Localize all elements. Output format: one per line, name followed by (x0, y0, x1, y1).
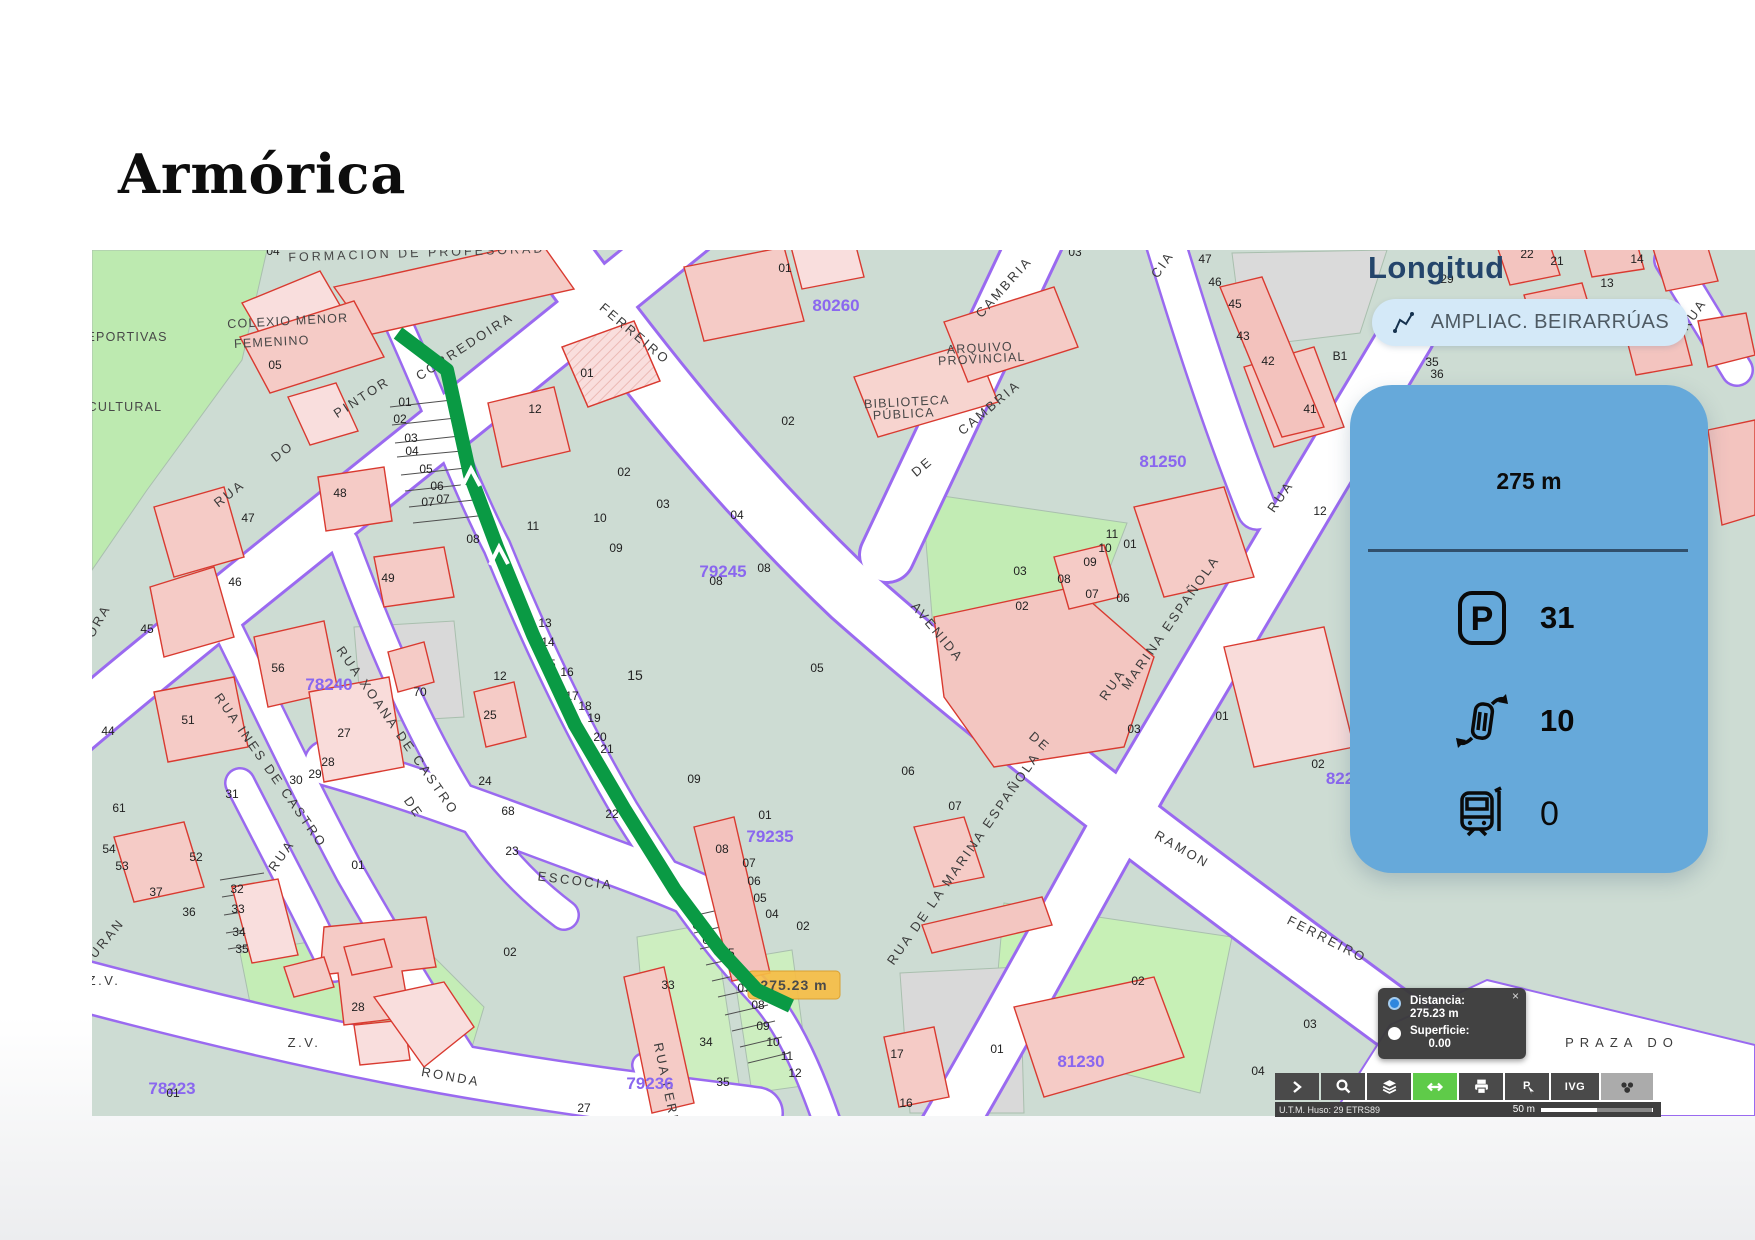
map-num-label: 04 (405, 444, 419, 458)
map-num-label: 12 (493, 669, 507, 683)
map-num-label: 02 (1131, 974, 1145, 988)
map-num-label: 02 (1311, 757, 1325, 771)
map-street-label: Z.V. (288, 1035, 321, 1050)
layers-icon (1381, 1078, 1398, 1095)
parking-icon: P (1454, 587, 1510, 649)
map-num-label: 02 (1015, 599, 1029, 613)
map-num-label: 29 (308, 767, 322, 781)
map-num-label: 08 (1057, 572, 1071, 586)
printer-icon (1473, 1078, 1490, 1095)
parking-count: 31 (1540, 600, 1574, 636)
map-num-label: B1 (1333, 349, 1348, 363)
tram-count: 0 (1540, 795, 1559, 834)
distance-value: 275.23 m (1410, 1008, 1465, 1020)
svg-text:P: P (1471, 600, 1494, 638)
map-num-label: 06 (747, 874, 761, 888)
map-num-label: 04 (765, 907, 779, 921)
map-num-label: 32 (230, 882, 244, 896)
map-num-label: 48 (333, 486, 347, 500)
map-num-label: 37 (149, 885, 163, 899)
map-num-label: 02 (393, 412, 407, 426)
map-num-label: 05 (268, 358, 282, 372)
scale-bar: 50 m (1513, 1104, 1653, 1115)
map-num-label: 03 (1068, 250, 1082, 259)
map-num-label: 01 (1123, 537, 1137, 551)
map-num-label: 10 (766, 1035, 780, 1049)
map-num-label: 11 (1106, 527, 1119, 541)
expand-button[interactable] (1275, 1073, 1319, 1100)
projection-status: U.T.M. Huso: 29 ETRS89 (1279, 1105, 1380, 1115)
map-num-label: 14 (1630, 252, 1644, 266)
map-num-label: 30 (289, 773, 303, 787)
map-num-label: 09 (609, 541, 623, 555)
map-num-label: 53 (115, 859, 129, 873)
map-ref-label: 79235 (746, 827, 793, 846)
stats-card: 275 m P 31 10 (1350, 385, 1708, 873)
divider (1368, 549, 1688, 552)
map-num-label: 42 (1261, 354, 1275, 368)
map-num-label: 22 (1520, 250, 1534, 261)
map-num-label: 13 (538, 616, 552, 630)
length-value: 275 m (1350, 468, 1708, 495)
map-num-label: 31 (225, 787, 239, 801)
map-num-label: 45 (140, 622, 154, 636)
map-num-label: 06 (1116, 591, 1130, 605)
map-num-label: 47 (1198, 252, 1212, 266)
map-num-label: 19 (587, 711, 601, 725)
map-num-label: 02 (617, 465, 631, 479)
map-zone-label: CULTURAL (92, 400, 162, 414)
waste-container-icon (1454, 690, 1510, 752)
map-num-label: 08 (709, 574, 723, 588)
map-num-label: 08 (466, 532, 480, 546)
map-num-label: 12 (788, 1066, 802, 1080)
map-num-label: 46 (1208, 275, 1222, 289)
map-num-label: 05 (419, 462, 433, 476)
area-radio[interactable] (1388, 1027, 1401, 1040)
slide: { "title": "Armórica", "panel": { "headi… (0, 0, 1755, 1240)
map-street-label: Z.V. (92, 973, 120, 988)
map-num-label: 03 (1127, 722, 1141, 736)
map-num-label: 56 (271, 661, 285, 675)
map-num-label: 02 (503, 945, 517, 959)
map-num-label: 47 (241, 511, 255, 525)
map-num-label: 09 (1083, 555, 1097, 569)
map-num-label: 27 (577, 1101, 591, 1115)
map-ref-label: 79245 (699, 562, 746, 581)
map-num-label: 36 (1430, 367, 1444, 381)
area-value: 0.00 (1410, 1038, 1469, 1050)
distance-option[interactable]: Distancia: 275.23 m (1388, 995, 1518, 1020)
map-num-label: 52 (189, 850, 203, 864)
map-num-label: 43 (1236, 329, 1250, 343)
map-num-label: 08 (715, 842, 729, 856)
map-num-label: 05 (753, 891, 767, 905)
map-num-label: 07 (948, 799, 962, 813)
map-num-label: 25 (483, 708, 497, 722)
street-chip[interactable]: AMPLIAC. BEIRARRÚAS (1372, 299, 1688, 346)
map-num-label: 03 (656, 497, 670, 511)
scale-label: 50 m (1513, 1104, 1535, 1115)
map-num-label: 02 (781, 414, 795, 428)
scale-bar-line (1541, 1108, 1653, 1112)
map-num-label: 07 (1085, 587, 1099, 601)
map-num-label: 21 (1550, 254, 1564, 268)
measure-button[interactable] (1413, 1073, 1457, 1100)
map-num-label: 21 (600, 742, 614, 756)
measure-arrow-icon (1426, 1079, 1444, 1095)
map-num-label: 27 (337, 726, 351, 740)
map-num-label: 49 (381, 571, 395, 585)
map-num-label: 01 (580, 366, 594, 380)
street-view-button[interactable] (1601, 1073, 1653, 1100)
search-icon (1335, 1078, 1352, 1095)
map-num-label: 35 (716, 1075, 730, 1089)
map-num-label: 01 (398, 395, 412, 409)
map-num-label: 05 (810, 661, 824, 675)
parcel-cursor-icon: P (1518, 1078, 1536, 1095)
map-num-label: 33 (661, 978, 675, 992)
map-num-label: 04 (266, 250, 280, 258)
map-num-label: 24 (478, 774, 492, 788)
page-title: Armórica (118, 142, 406, 206)
map-num-label: 03 (404, 431, 418, 445)
map-num-label: 07 (436, 492, 450, 506)
map-ref-label: 81250 (1139, 452, 1186, 471)
map-num-label: 16 (899, 1096, 913, 1110)
map-num-label: 16 (560, 665, 574, 679)
map-street-label: PRAZA DO (1565, 1035, 1679, 1050)
map-num-label: 28 (321, 755, 335, 769)
map-num-label: 03 (1013, 564, 1027, 578)
map-num-label: 07 (742, 856, 756, 870)
map-ref-label: 79236 (626, 1074, 673, 1093)
map-num-label: 28 (351, 1000, 365, 1014)
map-num-label: 33 (231, 902, 245, 916)
map-num-label: 51 (181, 713, 195, 727)
map-num-label: 08 (757, 561, 771, 575)
map-num-label: 35 (235, 942, 249, 956)
map-num-label: 02 (796, 919, 810, 933)
map-num-label: 34 (232, 925, 246, 939)
map-num-label: 36 (182, 905, 196, 919)
map-num-label: 68 (501, 804, 515, 818)
street-view-icon (1618, 1079, 1636, 1095)
stat-row-parking: P 31 (1350, 587, 1708, 649)
map-num-label: 03 (1303, 1017, 1317, 1031)
map-num-label: 06 (430, 479, 444, 493)
stat-row-tram: 0 (1350, 783, 1708, 845)
map-zone-label: DEPORTIVAS (92, 330, 168, 344)
panel-heading: Longitud (1368, 250, 1505, 286)
close-icon[interactable]: × (1512, 990, 1519, 1002)
print-button[interactable] (1459, 1073, 1503, 1100)
map-statusbar: U.T.M. Huso: 29 ETRS89 50 m (1275, 1102, 1661, 1117)
map-num-label: 45 (1228, 297, 1242, 311)
map-num-label: 11 (527, 519, 540, 533)
map-num-label: 41 (1303, 402, 1317, 416)
map-num-label: 61 (112, 801, 126, 815)
distance-label: Distancia: (1410, 995, 1465, 1007)
map-num-label: 09 (756, 1019, 770, 1033)
chevron-right-icon (1289, 1079, 1305, 1095)
map-num-label: 01 (758, 808, 772, 822)
map-num-label: 07 (421, 495, 435, 509)
map-num-label: 10 (593, 511, 607, 525)
map-num-label: 11 (781, 1049, 794, 1063)
map-num-label: 70 (413, 685, 427, 699)
map-num-label: 04 (1251, 1064, 1265, 1078)
map-num-label: 01 (351, 858, 365, 872)
map-ref-label: 78240 (305, 675, 352, 694)
street-chip-label: AMPLIAC. BEIRARRÚAS (1431, 311, 1669, 334)
map-num-label: 23 (505, 844, 519, 858)
map-num-label: 01 (778, 261, 792, 275)
containers-count: 10 (1540, 703, 1574, 739)
measure-tooltip: × Distancia: 275.23 m Superficie: 0.00 (1378, 988, 1526, 1059)
map-num-label: 12 (1313, 504, 1327, 518)
map-num-label: 01 (1215, 709, 1229, 723)
map-num-label: 06 (901, 764, 915, 778)
map-num-label: 10 (1098, 541, 1112, 555)
search-button[interactable] (1321, 1073, 1365, 1100)
map-toolbar: P IVG (1275, 1073, 1653, 1100)
map-num-label: 15 (627, 667, 643, 683)
map-num-label: 04 (730, 508, 744, 522)
distance-radio[interactable] (1388, 997, 1401, 1010)
map-num-label: 54 (102, 842, 116, 856)
map-num-label: 44 (101, 724, 115, 738)
map-num-label: 17 (890, 1047, 904, 1061)
ivg-button[interactable]: IVG (1551, 1073, 1599, 1100)
svg-text:P: P (1523, 1080, 1530, 1092)
area-option[interactable]: Superficie: 0.00 (1388, 1025, 1518, 1050)
layers-button[interactable] (1367, 1073, 1411, 1100)
map-num-label: 01 (990, 1042, 1004, 1056)
route-icon (1391, 310, 1417, 336)
map-ref-label: 81230 (1057, 1052, 1104, 1071)
map-num-label: 01 (166, 1086, 180, 1100)
map-num-label: 34 (699, 1035, 713, 1049)
ivg-label: IVG (1565, 1081, 1585, 1093)
map-num-label: 46 (228, 575, 242, 589)
stat-row-containers: 10 (1350, 690, 1708, 752)
map-num-label: 12 (528, 402, 542, 416)
area-label: Superficie: (1410, 1025, 1469, 1037)
map-num-label: 13 (1600, 276, 1614, 290)
map-num-label: 09 (687, 772, 701, 786)
parcel-select-button[interactable]: P (1505, 1073, 1549, 1100)
map-ref-label: 80260 (812, 296, 859, 315)
tram-stop-icon (1454, 783, 1510, 845)
